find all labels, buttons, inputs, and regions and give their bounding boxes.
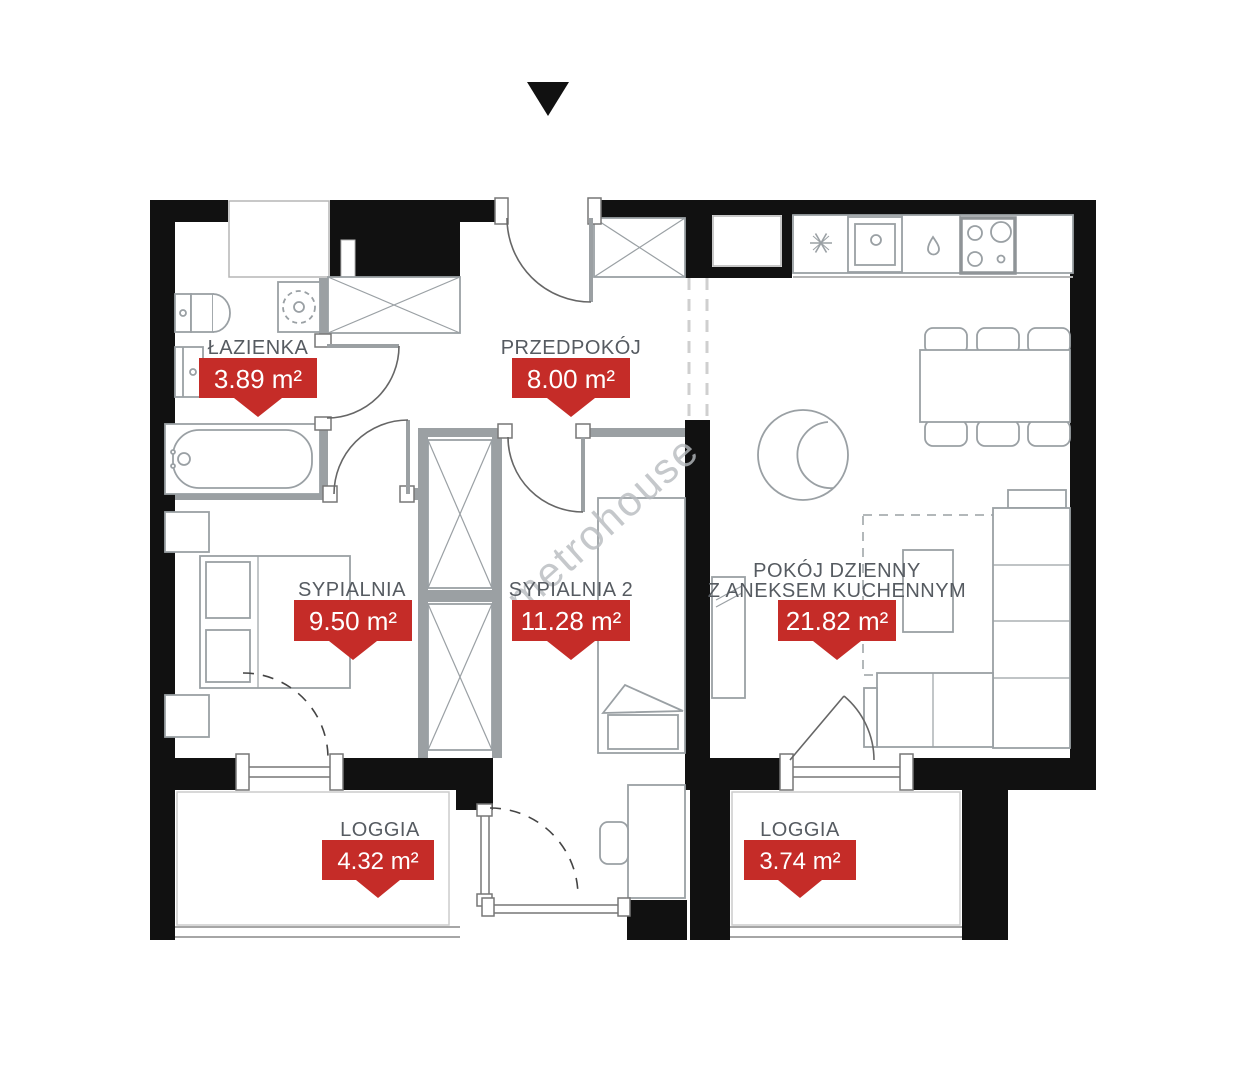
room-name-pokoj-dzienny: POKÓJ DZIENNY [753, 559, 921, 582]
room-area-sypialnia2: 11.28 m² [521, 606, 622, 636]
room-area-loggia-1: 4.32 m² [337, 848, 418, 875]
room-name-sypialnia: SYPIALNIA [298, 579, 406, 601]
entrance-arrow-icon [527, 82, 569, 116]
armchair [758, 410, 848, 500]
desk [628, 785, 685, 898]
washbasin [175, 347, 203, 397]
room-name-loggia-1: LOGGIA [340, 819, 420, 841]
shaft-niche [713, 216, 781, 266]
stove-icon [961, 218, 1015, 273]
livingroom-balcony-door [790, 696, 874, 760]
room-name-pokoj-dzienny-2: Z ANEKSEM KUCHENNYM [708, 580, 966, 602]
room-name-przedpokoj: PRZEDPOKÓJ [501, 336, 642, 359]
nightstand [165, 695, 209, 737]
toilet [175, 294, 230, 332]
bedroom1-door [334, 420, 408, 494]
sink-icon [848, 217, 902, 272]
kitchen-counter [793, 215, 1073, 277]
room-name-lazienka: ŁAZIENKA [208, 337, 309, 359]
open-passage [689, 278, 707, 420]
desk-chair [600, 822, 628, 864]
bathtub [165, 424, 320, 494]
room-labels: ŁAZIENKA 3.89 m² PRZEDPOKÓJ 8.00 m² SYPI… [199, 336, 966, 898]
floor-plan: metrohouse ŁAZIENKA 3.89 m² PRZEDPOKÓJ 8… [0, 0, 1256, 1080]
furniture [165, 215, 1073, 898]
room-area-lazienka: 3.89 m² [214, 364, 302, 394]
room-name-sypialnia2: SYPIALNIA 2 [509, 579, 633, 601]
loggia-railings [175, 927, 962, 937]
bedroom2-door [508, 437, 583, 512]
nightstand [165, 512, 209, 552]
room-area-przedpokoj: 8.00 m² [527, 364, 615, 394]
room-name-loggia-2: LOGGIA [760, 819, 840, 841]
room-area-sypialnia: 9.50 m² [309, 606, 397, 636]
floor-plan-page: metrohouse ŁAZIENKA 3.89 m² PRZEDPOKÓJ 8… [0, 0, 1256, 1080]
wardrobe [328, 277, 460, 333]
facade-recess [229, 201, 329, 277]
washing-machine [278, 282, 320, 332]
dining-table [920, 350, 1070, 422]
wardrobe [594, 218, 685, 277]
room-area-pokoj-dzienny: 21.82 m² [786, 606, 889, 636]
room-area-loggia-2: 3.74 m² [759, 848, 840, 875]
wardrobe [428, 440, 492, 588]
bathroom-door [327, 346, 399, 418]
bedroom2-loggia-door [490, 808, 578, 896]
wardrobe [428, 604, 492, 750]
entrance-door [507, 218, 591, 302]
duct-slot [341, 240, 355, 278]
